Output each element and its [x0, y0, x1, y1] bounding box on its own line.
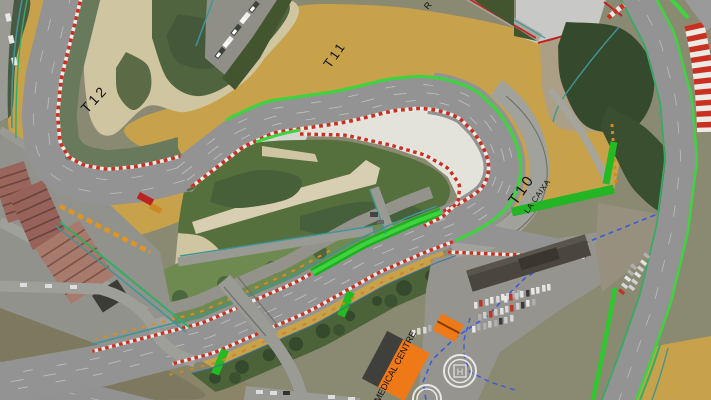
- svg-text:H: H: [457, 367, 464, 377]
